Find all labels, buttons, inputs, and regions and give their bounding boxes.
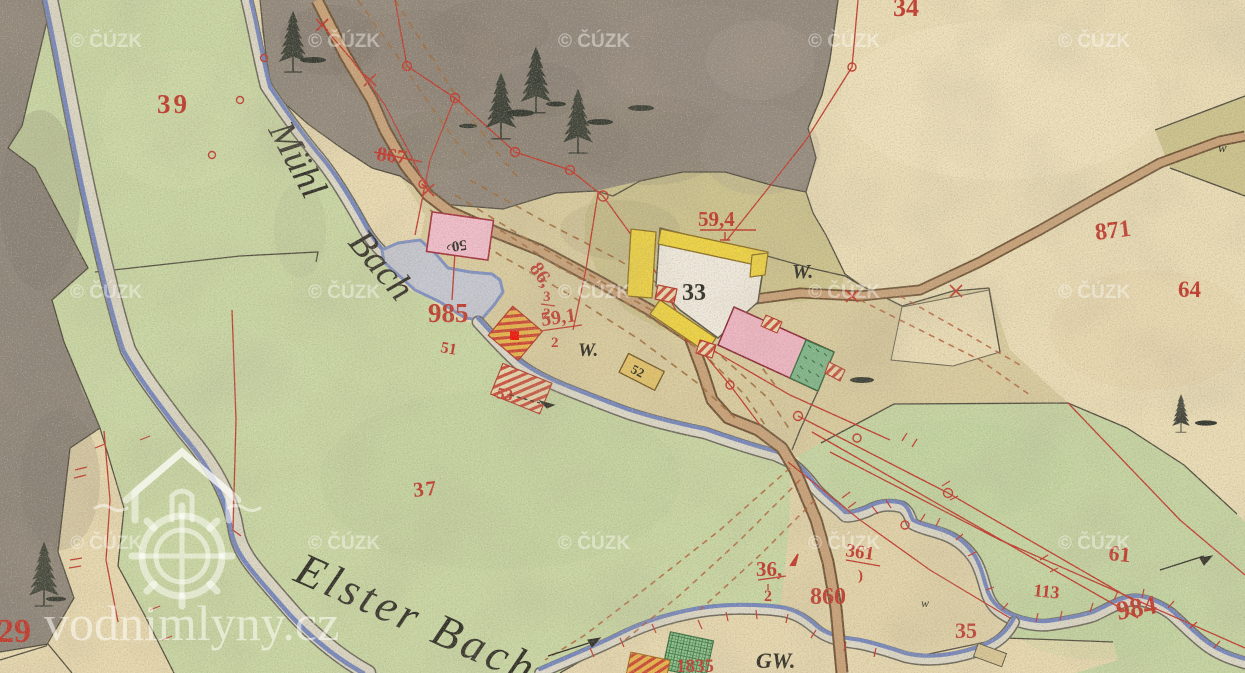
- svg-text:© ČÚZK: © ČÚZK: [1058, 30, 1130, 52]
- svg-text:© ČÚZK: © ČÚZK: [308, 30, 380, 52]
- svg-text:© ČÚZK: © ČÚZK: [558, 532, 630, 554]
- svg-text:vodnimlyny.cz: vodnimlyny.cz: [44, 595, 339, 651]
- svg-text:© ČÚZK: © ČÚZK: [70, 532, 142, 554]
- svg-text:© ČÚZK: © ČÚZK: [1058, 532, 1130, 554]
- svg-text:© ČÚZK: © ČÚZK: [308, 532, 380, 554]
- svg-text:© ČÚZK: © ČÚZK: [1058, 281, 1130, 303]
- svg-text:© ČÚZK: © ČÚZK: [808, 532, 880, 554]
- svg-text:© ČÚZK: © ČÚZK: [70, 30, 142, 52]
- svg-text:© ČÚZK: © ČÚZK: [308, 281, 380, 303]
- svg-text:© ČÚZK: © ČÚZK: [808, 30, 880, 52]
- svg-text:© ČÚZK: © ČÚZK: [558, 281, 630, 303]
- svg-text:© ČÚZK: © ČÚZK: [70, 281, 142, 303]
- svg-text:© ČÚZK: © ČÚZK: [558, 30, 630, 52]
- svg-text:© ČÚZK: © ČÚZK: [808, 281, 880, 303]
